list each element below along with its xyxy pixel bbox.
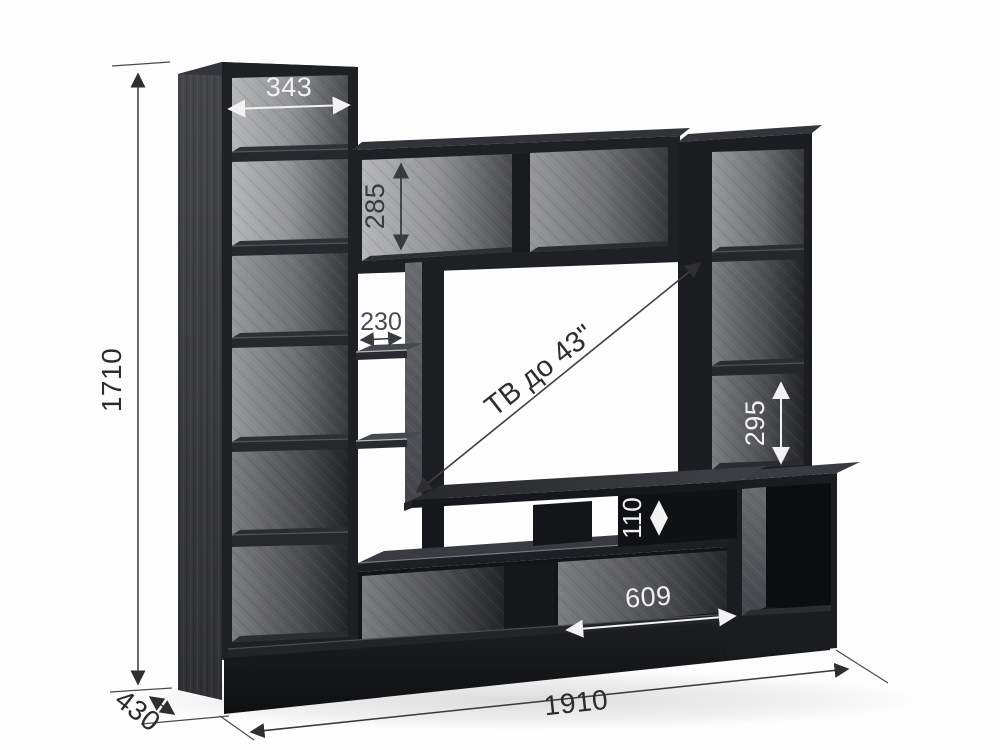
furniture-dimension-drawing: 343 285 230 ТВ до 43" 295 110 609 1710 1…: [0, 0, 1000, 750]
right-box-left-wall-texture: [742, 487, 766, 616]
dim-1710-label: 1710: [96, 348, 127, 412]
left-column-side-grain: [178, 62, 222, 700]
tv-wall-unit-drawing: 343 285 230 ТВ до 43" 295 110 609 1710 1…: [0, 0, 1000, 750]
dim-285-label: 285: [360, 183, 390, 230]
mini-divider-foot: [422, 503, 444, 551]
bridge-center-divider: [512, 153, 530, 252]
left-compartment-4-texture: [232, 345, 348, 442]
dim-609-label: 609: [624, 580, 673, 613]
dim-295-label: 295: [740, 400, 770, 447]
dim-230-label: 230: [360, 308, 402, 336]
left-column: [178, 62, 358, 700]
mini-divider-texture: [405, 262, 422, 508]
left-compartment-6-texture: [232, 544, 348, 642]
dim-343-label: 343: [266, 72, 313, 102]
right-compartment-2-texture: [712, 259, 804, 366]
left-compartment-3-texture: [232, 253, 348, 338]
dim-110-label: 110: [617, 497, 647, 538]
mini-divider-front: [422, 261, 444, 505]
top-bridge: [352, 128, 690, 274]
left-compartment-2-texture: [232, 159, 348, 246]
left-compartment-5-texture: [232, 449, 348, 535]
bridge-right-texture: [530, 147, 668, 252]
niche-divider: [533, 501, 592, 546]
right-compartment-1-texture: [712, 149, 804, 252]
right-box-interior: [766, 483, 831, 611]
